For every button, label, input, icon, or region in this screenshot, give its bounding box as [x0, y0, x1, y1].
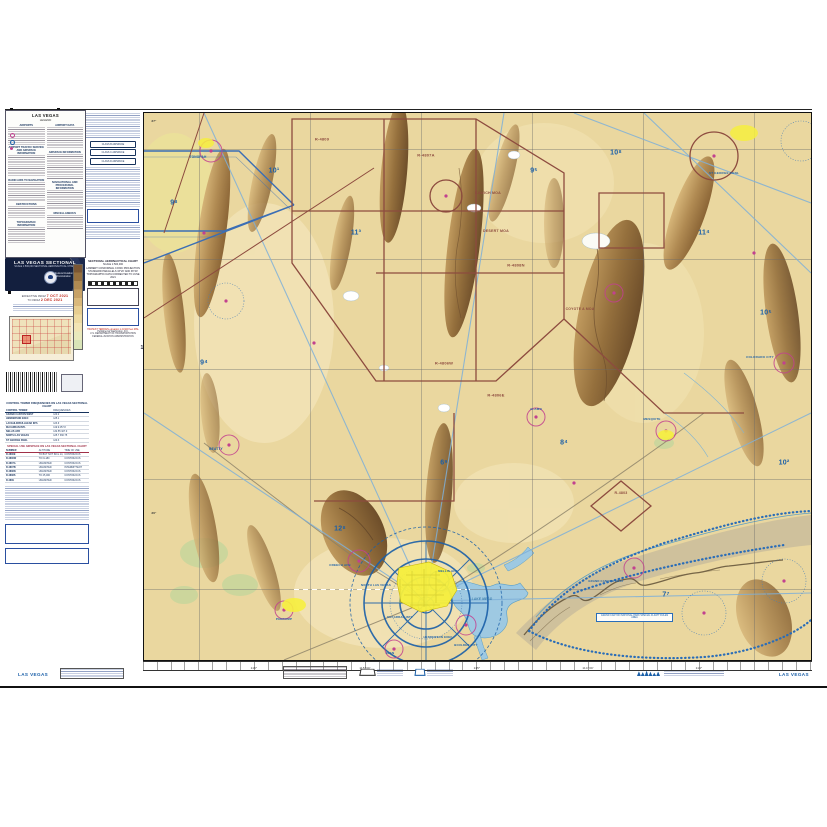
table-cell: R-4807A — [5, 462, 38, 465]
table-cell: 125.7 360.75 — [52, 434, 89, 437]
table-cell: 120.3 — [52, 439, 89, 442]
scale-info-block: SECTIONAL AERONAUTICAL CHART SCALE 1:500… — [86, 260, 140, 339]
obstruction-note — [415, 668, 453, 676]
legend-section-body-greek — [47, 127, 84, 149]
legend-section-body-greek — [47, 154, 84, 180]
legend-note-box — [87, 209, 139, 223]
scale-bar — [88, 281, 138, 286]
vfr-checkpoint-note — [360, 668, 403, 676]
coverage-grid — [12, 319, 71, 354]
effective-to-prefix: TO 0901Z — [28, 298, 41, 302]
airport-symbol-magenta — [10, 133, 15, 138]
table-cell: UNLIMITED — [38, 470, 64, 473]
scale-info-line: TOPOGRAPHIC DATA CORRECTED TO JUNE 2021 — [86, 273, 140, 279]
brand-tagline-greek — [664, 671, 724, 676]
edition-box — [61, 374, 83, 392]
margin-note-center — [283, 666, 347, 679]
ctaf-col-header: CONTROL TOWER — [5, 409, 52, 412]
legend-section-heading: AIRPORT TRAFFIC SERVICE AND AIRSPACE INF… — [8, 146, 45, 155]
table-cell: CONTINUOUS — [63, 470, 89, 473]
chart-sheet: LAS VEGAS LEGEND AIRPORTSAIRPORT TRAFFIC… — [0, 108, 827, 688]
legend-column-right: AIRPORT DATAAIRSPACE INFORMATIONNAVIGATI… — [47, 123, 84, 245]
table-cell: 119.9 257.8 — [52, 426, 89, 429]
legend-paragraph-greek — [86, 225, 140, 239]
ctaf-table-rows: GRAND CANYON WEST120.2HENDERSON EXEC125.… — [5, 413, 89, 443]
table-cell: R-4808S — [5, 474, 38, 477]
table-cell: CONTINUOUS — [63, 457, 89, 460]
table-cell: CONTINUOUS — [63, 474, 89, 477]
table-cell: CONTINUOUS — [63, 462, 89, 465]
legend-paragraph-greek — [86, 113, 140, 139]
airport-symbol-filled — [10, 147, 13, 150]
margin-note-left — [60, 668, 124, 679]
legend-continuation-panel: CLASS B AIRSPACE CLASS C AIRSPACE CLASS … — [86, 113, 140, 256]
sectional-map-canvas — [144, 113, 811, 660]
table-row: ST GEORGE RGNL120.3 — [5, 439, 89, 443]
map-label: 115° — [474, 666, 481, 670]
table-cell: NORTH LAS VEGAS — [5, 434, 52, 437]
elevation-tint-bar — [73, 264, 83, 350]
effective-note-greek — [13, 304, 77, 311]
coverage-highlight-las-vegas — [22, 335, 31, 344]
table-cell: 120.2 — [52, 413, 89, 416]
checkpoint-note-greek — [377, 669, 403, 676]
legend-panel: LAS VEGAS LEGEND AIRPORTSAIRPORT TRAFFIC… — [5, 110, 86, 258]
margin-tables: CONTROL TOWER FREQUENCIES ON LAS VEGAS S… — [5, 400, 89, 564]
map-label: 114°30' — [582, 666, 593, 670]
barcode — [6, 372, 58, 392]
sua-col-header: ALTITUDE — [38, 449, 64, 452]
table-cell: R-4808N — [5, 470, 38, 473]
map-area: R-4809R-4807AKAWICH MOADESERT MOAR-4808N… — [143, 112, 812, 661]
sua-col-header: NUMBER — [5, 449, 38, 452]
table-cell: TO BUT NOT INCL 14,000 — [38, 453, 64, 456]
table-cell: UNLIMITED — [38, 466, 64, 469]
legend-section-heading: RADIO AIDS TO NAVIGATION — [8, 179, 45, 182]
sheet-title-left: LAS VEGAS — [18, 672, 48, 677]
dry-lake — [582, 233, 610, 249]
panel-note-box — [5, 548, 89, 564]
obstruction-symbol-icon — [414, 669, 425, 676]
legend-section-body-greek — [47, 215, 84, 230]
table-cell: CONTINUOUS — [63, 479, 89, 482]
sheet-bottom-edge — [0, 686, 827, 688]
table-cell: UNLIMITED — [38, 462, 64, 465]
legend-section-body-greek — [8, 155, 45, 177]
mountain-logo-icon — [637, 670, 661, 676]
sheet-top-edge — [5, 109, 812, 110]
table-cell: R-4809 — [5, 479, 38, 482]
sectional-chart-sheet: { "colors":{"maroon":"#8d4b3f","blue":"#… — [0, 0, 827, 827]
legend-paragraph-greek — [86, 167, 140, 207]
conversion-note-box — [87, 288, 139, 306]
ctaf-col-header: FREQUENCIES — [52, 409, 89, 412]
table-cell: R-4807B — [5, 466, 38, 469]
coverage-map — [9, 316, 74, 361]
table-footnote-greek — [5, 486, 89, 520]
table-cell: NELLIS AFB — [5, 430, 52, 433]
table-cell: ST GEORGE RGNL — [5, 439, 52, 442]
table-row: R-4809UNLIMITEDCONTINUOUS — [5, 479, 89, 483]
table-cell: R-4806E — [5, 453, 38, 456]
table-cell: TO 25,000 — [38, 474, 64, 477]
legend-section-body-greek — [8, 206, 45, 219]
legend-section-heading: AIRSPACE INFORMATION — [47, 151, 84, 154]
table-cell: 125.1 — [52, 417, 89, 420]
ctaf-table-title: CONTROL TOWER FREQUENCIES ON LAS VEGAS S… — [5, 402, 89, 408]
legend-section-body-greek — [47, 190, 84, 210]
class-d-sample-box: CLASS D AIRSPACE — [90, 158, 136, 165]
table-cell: R-4806W — [5, 457, 38, 460]
table-cell: LAUGHLIN/BULLHEAD INTL — [5, 422, 52, 425]
table-cell: INTERMITTENT — [63, 466, 89, 469]
chart-note-box — [87, 308, 139, 326]
class-b-sample-box: CLASS B AIRSPACE — [90, 141, 136, 148]
publisher-line: FEDERAL AVIATION ADMINISTRATION — [86, 336, 140, 339]
table-cell: TO FL180 — [38, 457, 64, 460]
faa-aeronav-brand — [637, 670, 724, 676]
legend-section-body-greek — [8, 182, 45, 202]
obstruction-note-greek — [427, 669, 453, 676]
legend-section-heading: NAVIGATIONAL AND PROCEDURAL INFORMATION — [47, 181, 84, 190]
sua-table-title: SPECIAL USE AIRSPACE ON LAS VEGAS SECTIO… — [5, 445, 89, 448]
table-cell: UNLIMITED — [38, 479, 64, 482]
sheet-title-right: LAS VEGAS — [779, 672, 809, 677]
table-cell: GRAND CANYON WEST — [5, 413, 52, 416]
panel-note-box — [5, 524, 89, 544]
table-cell: 123.9 — [52, 422, 89, 425]
checkpoint-symbol-icon — [359, 669, 376, 676]
table-cell: CONTINUOUS — [63, 453, 89, 456]
class-c-sample-box: CLASS C AIRSPACE — [90, 149, 136, 156]
legend-section-body-greek — [8, 227, 45, 245]
map-label: 116° — [251, 666, 258, 670]
sua-table-rows: R-4806ETO BUT NOT INCL 14,000CONTINUOUSR… — [5, 453, 89, 483]
gc-sfra-note: GRAND CANYON NATIONAL PARK SPECIAL FLIGH… — [596, 613, 673, 622]
airport-symbol-blue — [10, 140, 15, 145]
effective-date-end: 2 DEC 2021 — [41, 298, 63, 302]
table-cell: McCARRAN INTL — [5, 426, 52, 429]
table-cell: 132.55 327.0 — [52, 430, 89, 433]
table-cell: HENDERSON EXEC — [5, 417, 52, 420]
sua-col-header: TIME OF USE — [63, 449, 89, 452]
